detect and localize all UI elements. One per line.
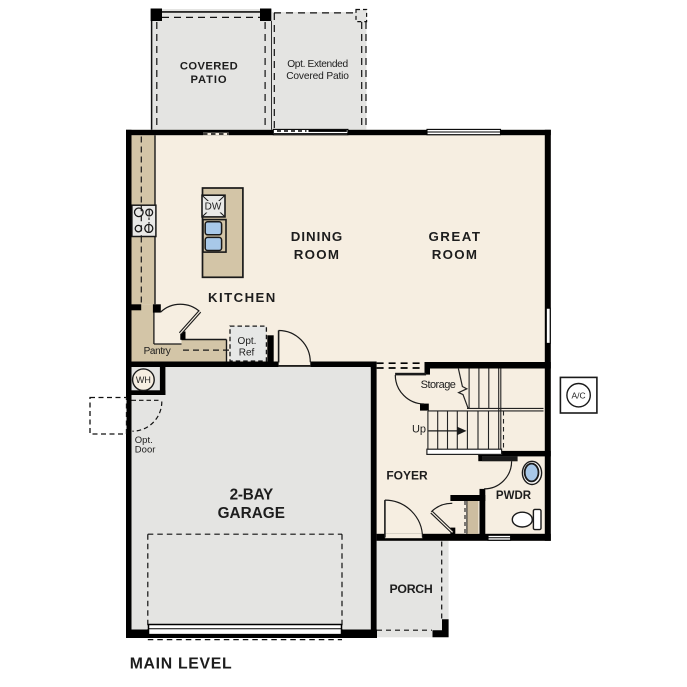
svg-text:Covered Patio: Covered Patio bbox=[286, 71, 349, 82]
svg-text:GREAT: GREAT bbox=[428, 229, 481, 244]
svg-text:ROOM: ROOM bbox=[432, 247, 479, 262]
svg-text:PORCH: PORCH bbox=[390, 582, 433, 596]
svg-text:Ref: Ref bbox=[239, 347, 255, 358]
svg-text:Door: Door bbox=[135, 444, 156, 455]
svg-text:FOYER: FOYER bbox=[386, 469, 428, 483]
svg-text:WH: WH bbox=[136, 375, 151, 385]
svg-text:2-BAY: 2-BAY bbox=[230, 487, 273, 504]
svg-text:Pantry: Pantry bbox=[144, 346, 171, 357]
svg-text:PATIO: PATIO bbox=[190, 74, 227, 86]
svg-text:PWDR: PWDR bbox=[496, 490, 532, 502]
svg-text:ROOM: ROOM bbox=[294, 247, 341, 262]
svg-text:KITCHEN: KITCHEN bbox=[208, 290, 277, 305]
svg-text:Up: Up bbox=[412, 424, 426, 436]
svg-text:DW: DW bbox=[205, 202, 222, 213]
svg-text:A/C: A/C bbox=[572, 390, 586, 400]
svg-text:Opt.: Opt. bbox=[238, 336, 257, 347]
svg-text:DINING: DINING bbox=[291, 229, 344, 244]
svg-text:Opt. Extended: Opt. Extended bbox=[287, 59, 348, 70]
svg-text:MAIN LEVEL: MAIN LEVEL bbox=[130, 655, 233, 672]
svg-text:Storage: Storage bbox=[421, 379, 456, 391]
svg-text:COVERED: COVERED bbox=[180, 60, 238, 72]
svg-text:GARAGE: GARAGE bbox=[218, 505, 285, 522]
